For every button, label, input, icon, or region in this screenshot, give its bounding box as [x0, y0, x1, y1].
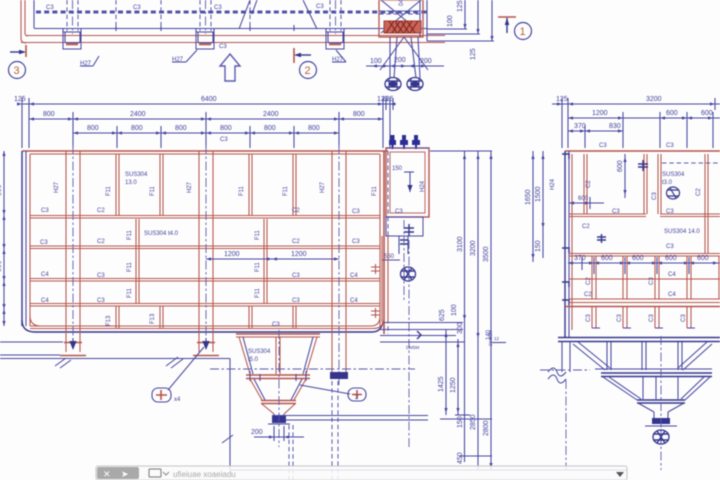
svg-text:200: 200: [420, 58, 432, 65]
svg-text:125: 125: [470, 48, 477, 60]
svg-text:800: 800: [220, 125, 232, 132]
svg-text:200: 200: [394, 57, 406, 64]
svg-text:C3: C3: [649, 277, 655, 285]
svg-text:F11: F11: [255, 287, 261, 298]
svg-text:C3: C3: [617, 314, 623, 322]
svg-text:125: 125: [14, 96, 26, 103]
svg-text:830: 830: [609, 123, 621, 130]
svg-text:C3: C3: [652, 192, 658, 200]
svg-text:2400: 2400: [263, 111, 279, 118]
svg-text:C3: C3: [292, 298, 300, 304]
svg-text:F11: F11: [255, 261, 261, 272]
svg-text:800: 800: [0, 184, 3, 196]
svg-text:800: 800: [175, 125, 187, 132]
svg-text:100: 100: [451, 304, 458, 316]
svg-text:C3: C3: [292, 273, 300, 279]
svg-text:600: 600: [665, 255, 677, 262]
svg-text:04T: 04T: [399, 0, 405, 6]
svg-text:F11: F11: [239, 185, 245, 196]
svg-text:200: 200: [251, 429, 263, 436]
svg-text:F11: F11: [150, 185, 156, 196]
svg-text:SUS304: SUS304: [662, 172, 685, 178]
svg-text:C2: C2: [586, 180, 592, 188]
svg-text:C4: C4: [350, 273, 358, 279]
svg-text:C2: C2: [696, 188, 702, 196]
svg-text:3200: 3200: [646, 96, 662, 103]
svg-text:800: 800: [308, 125, 320, 132]
svg-text:C3: C3: [220, 137, 228, 143]
svg-text:1200: 1200: [224, 251, 240, 258]
svg-text:1250: 1250: [450, 377, 457, 393]
svg-text:600: 600: [666, 110, 678, 117]
svg-text:600: 600: [697, 255, 709, 262]
svg-text:600: 600: [701, 110, 713, 117]
svg-text:H24: H24: [420, 180, 426, 192]
svg-text:2400: 2400: [130, 111, 146, 118]
svg-text:12: 12: [494, 336, 500, 341]
svg-text:2800: 2800: [483, 420, 490, 436]
svg-text:C3: C3: [97, 298, 105, 304]
svg-text:C3: C3: [219, 44, 227, 50]
svg-text:C3: C3: [395, 209, 403, 215]
svg-text:800: 800: [87, 125, 99, 132]
svg-text:C3: C3: [97, 273, 105, 279]
svg-text:C4: C4: [41, 298, 49, 304]
svg-text:150: 150: [457, 416, 464, 428]
svg-text:F13: F13: [106, 315, 112, 326]
svg-text:370: 370: [574, 255, 586, 262]
svg-text:C3: C3: [40, 240, 48, 246]
svg-text:SUS304: SUS304: [248, 349, 271, 355]
svg-text:ufieiuae xoaeiadu: ufieiuae xoaeiadu: [173, 470, 236, 479]
svg-text:600: 600: [617, 160, 624, 172]
svg-text:3: 3: [14, 65, 20, 77]
svg-text:C2: C2: [586, 277, 592, 285]
svg-text:1650: 1650: [525, 189, 532, 205]
svg-text:F13: F13: [150, 313, 156, 324]
svg-text:F11: F11: [127, 261, 133, 272]
svg-text:125: 125: [556, 96, 568, 103]
svg-text:150: 150: [535, 240, 542, 252]
svg-text:C3: C3: [352, 209, 360, 215]
svg-text:1425: 1425: [438, 376, 445, 392]
svg-text:C3: C3: [352, 239, 360, 245]
svg-text:300: 300: [457, 322, 464, 334]
svg-text:100: 100: [447, 15, 454, 27]
svg-text:6400: 6400: [201, 96, 217, 103]
svg-text:600: 600: [578, 196, 589, 202]
svg-text:625: 625: [439, 309, 446, 321]
svg-text:C3: C3: [214, 5, 222, 11]
svg-text:1: 1: [520, 26, 526, 38]
svg-text:2850: 2850: [470, 414, 477, 430]
svg-text:C4: C4: [668, 292, 676, 298]
svg-text:600: 600: [601, 255, 613, 262]
svg-text:H27: H27: [54, 181, 60, 193]
svg-text:3100: 3100: [457, 236, 464, 252]
svg-text:F11: F11: [372, 185, 378, 196]
svg-text:450: 450: [457, 452, 464, 464]
svg-text:1200: 1200: [291, 251, 307, 258]
svg-text:H24: H24: [550, 178, 556, 190]
svg-text:600: 600: [632, 255, 644, 262]
svg-text:F11: F11: [106, 185, 112, 196]
svg-text:DM50M: DM50M: [488, 330, 493, 346]
svg-text:F11: F11: [283, 185, 289, 196]
svg-text:C3: C3: [649, 314, 655, 322]
svg-text:800: 800: [43, 111, 55, 118]
svg-text:C3: C3: [586, 314, 592, 322]
svg-text:3500: 3500: [483, 246, 490, 262]
svg-text:C3: C3: [41, 208, 49, 214]
svg-text:F11: F11: [255, 229, 261, 240]
svg-text:H27: H27: [187, 181, 193, 193]
svg-text:SUS304: SUS304: [125, 172, 148, 178]
svg-text:800: 800: [353, 111, 365, 118]
svg-text:DM5M: DM5M: [406, 345, 420, 350]
svg-text:C3: C3: [681, 314, 687, 322]
svg-text:1500: 1500: [535, 186, 542, 202]
svg-text:C3: C3: [133, 5, 141, 11]
svg-text:C3: C3: [666, 143, 674, 149]
svg-text:F11: F11: [127, 287, 133, 298]
svg-text:SUS304 14.0: SUS304 14.0: [664, 229, 700, 235]
svg-text:H27: H27: [320, 181, 326, 193]
svg-text:C2: C2: [97, 239, 105, 245]
svg-text:370: 370: [574, 123, 586, 130]
svg-text:125: 125: [382, 96, 394, 103]
svg-text:800: 800: [264, 125, 276, 132]
svg-text:550: 550: [384, 254, 395, 260]
svg-text:C3: C3: [599, 143, 607, 149]
svg-text:C3: C3: [316, 4, 324, 10]
svg-text:✕: ✕: [103, 469, 111, 479]
svg-text:13.0: 13.0: [125, 180, 137, 186]
svg-text:3200: 3200: [470, 240, 477, 256]
svg-text:C2: C2: [584, 292, 592, 298]
svg-text:C3: C3: [272, 322, 280, 328]
svg-text:100: 100: [370, 58, 382, 65]
svg-text:800: 800: [131, 125, 143, 132]
svg-text:C2: C2: [292, 208, 300, 214]
svg-text:C3: C3: [612, 209, 620, 215]
svg-text:125: 125: [457, 0, 464, 12]
svg-text:C2: C2: [292, 239, 300, 245]
svg-text:150: 150: [392, 166, 403, 172]
svg-text:C4: C4: [668, 272, 676, 278]
svg-text:800: 800: [0, 260, 3, 272]
svg-text:t5.0: t5.0: [248, 357, 259, 363]
svg-text:F11: F11: [127, 229, 133, 240]
svg-text:C3: C3: [666, 244, 674, 250]
svg-text:1200: 1200: [592, 110, 608, 117]
svg-text:C2: C2: [582, 224, 590, 230]
svg-text:C3: C3: [46, 5, 54, 11]
svg-text:➤: ➤: [121, 469, 129, 479]
svg-text:x4: x4: [174, 397, 181, 403]
svg-text:C4: C4: [350, 298, 358, 304]
svg-text:2: 2: [305, 65, 311, 77]
svg-text:SUS304 t4.0: SUS304 t4.0: [144, 231, 179, 237]
svg-text:C3: C3: [666, 209, 674, 215]
svg-text:t3.0: t3.0: [662, 180, 673, 186]
svg-text:C2: C2: [97, 208, 105, 214]
svg-text:C4: C4: [41, 272, 49, 278]
